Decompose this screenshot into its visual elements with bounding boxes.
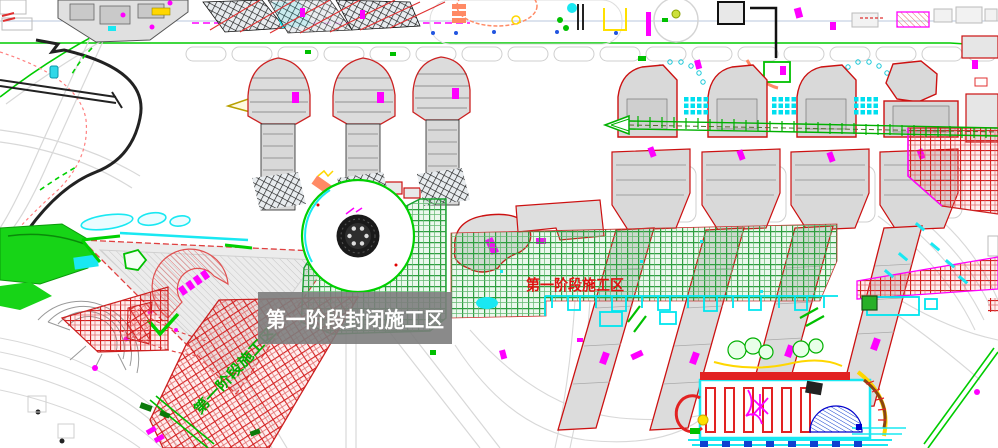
tree-icon <box>809 339 823 353</box>
tape-arrow-icon <box>605 116 629 134</box>
magenta-hatch-block <box>897 12 929 27</box>
phase1-zone-text-red: 第一阶段施工区 <box>526 276 624 294</box>
pond-ellipses <box>80 211 190 232</box>
tower-cluster-1 <box>248 58 310 210</box>
black-hatched-buildings <box>203 0 445 33</box>
flower-icon <box>672 10 680 18</box>
green-block <box>862 296 877 310</box>
cad-site-plan: 第一阶段施工区 第一阶段施工区 第一阶段封闭施工区 <box>0 0 998 448</box>
tree-icon <box>728 341 746 359</box>
closed-zone-label: 第一阶段封闭施工区 <box>266 308 444 332</box>
cyan-dot <box>567 3 577 13</box>
oval-plaza <box>457 0 537 26</box>
tree-icon <box>759 345 773 359</box>
label-overlay: 第一阶段封闭施工区 <box>258 292 452 344</box>
site-plan-svg: 第一阶段施工区 第一阶段施工区 第一阶段封闭施工区 <box>0 0 998 448</box>
central-roundabout <box>302 180 414 292</box>
parking-row <box>186 47 996 222</box>
tower-cluster-3 <box>413 57 470 206</box>
cyan-icon <box>50 66 58 78</box>
roundabout-core <box>337 215 380 258</box>
yellow-building <box>604 8 626 30</box>
yellow-marker <box>152 8 170 15</box>
lawn-patches <box>0 224 99 310</box>
tree-icon <box>793 341 809 357</box>
